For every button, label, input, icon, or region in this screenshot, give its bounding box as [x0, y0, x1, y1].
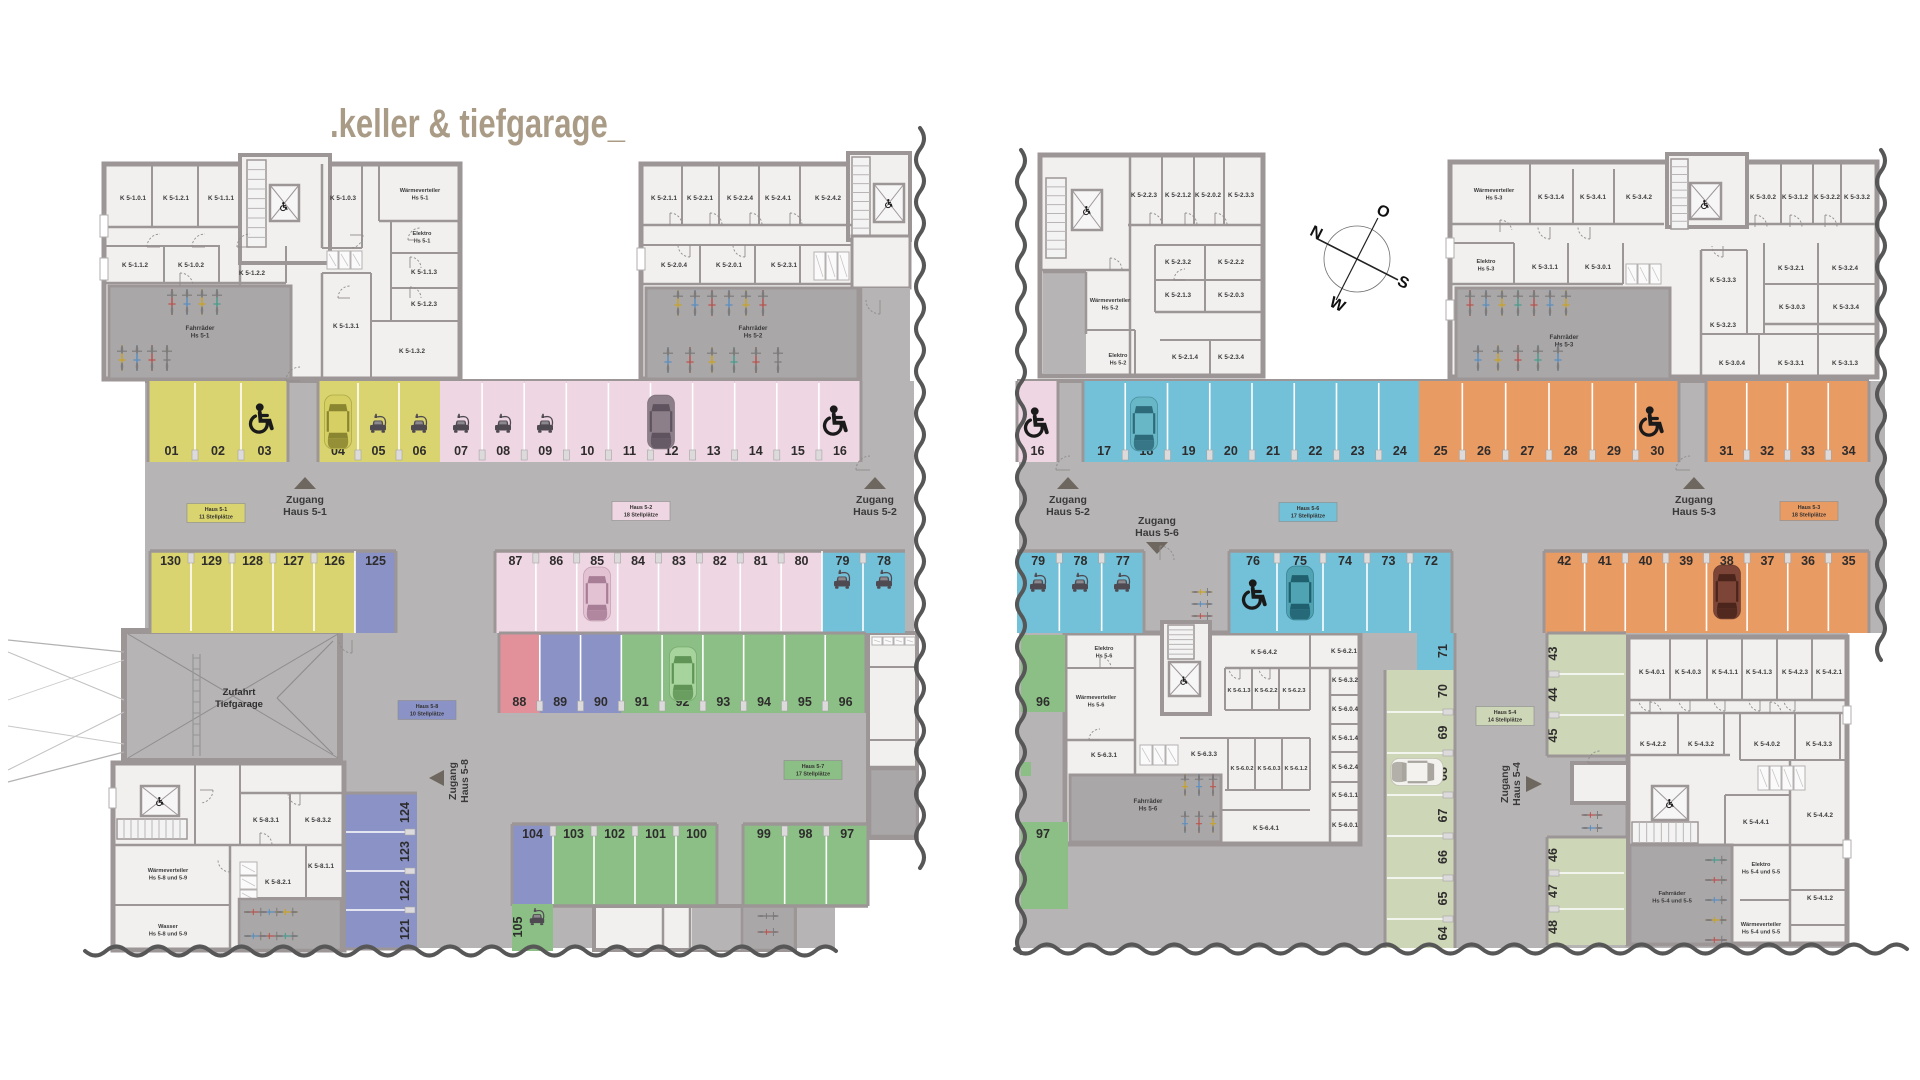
- svg-text:K 5-6.0.1: K 5-6.0.1: [1332, 822, 1358, 829]
- svg-text:Hs 5-1: Hs 5-1: [191, 333, 210, 340]
- svg-text:Wärmeverteiler: Wärmeverteiler: [1076, 695, 1117, 701]
- svg-text:19: 19: [1182, 444, 1196, 458]
- svg-text:29: 29: [1607, 444, 1621, 458]
- svg-text:22: 22: [1308, 444, 1322, 458]
- svg-text:10 Stellplätze: 10 Stellplätze: [410, 712, 444, 718]
- svg-text:Haus 5-4: Haus 5-4: [1511, 762, 1523, 806]
- svg-text:84: 84: [631, 554, 645, 568]
- svg-text:K 5-3.1.2: K 5-3.1.2: [1782, 194, 1808, 201]
- svg-text:K 5-6.4.1: K 5-6.4.1: [1253, 825, 1279, 832]
- svg-text:K 5-4.1.2: K 5-4.1.2: [1807, 895, 1833, 902]
- svg-text:K 5-1.2.1: K 5-1.2.1: [163, 195, 189, 202]
- svg-text:Hs 5-2: Hs 5-2: [1110, 361, 1127, 367]
- svg-text:121: 121: [398, 919, 412, 940]
- svg-text:Hs 5-2: Hs 5-2: [1102, 306, 1119, 312]
- svg-text:124: 124: [398, 802, 412, 823]
- svg-text:K 5-2.0.4: K 5-2.0.4: [661, 262, 687, 269]
- svg-text:17 Stellplätze: 17 Stellplätze: [1291, 514, 1325, 520]
- svg-text:Elektro: Elektro: [1095, 646, 1115, 652]
- svg-text:34: 34: [1842, 444, 1856, 458]
- svg-text:42: 42: [1557, 554, 1571, 568]
- svg-text:K 5-2.1.1: K 5-2.1.1: [651, 195, 677, 202]
- svg-text:11: 11: [623, 444, 636, 458]
- svg-text:90: 90: [594, 695, 608, 709]
- svg-text:Hs 5-3: Hs 5-3: [1486, 196, 1503, 202]
- svg-text:87: 87: [508, 554, 522, 568]
- svg-text:Hs 5-1: Hs 5-1: [414, 239, 431, 245]
- svg-text:Haus 5-7: Haus 5-7: [802, 764, 824, 770]
- svg-text:125: 125: [365, 554, 386, 568]
- svg-text:03: 03: [258, 444, 272, 458]
- svg-text:K 5-3.0.3: K 5-3.0.3: [1779, 304, 1805, 311]
- svg-text:Zugang: Zugang: [856, 494, 894, 506]
- svg-text:K 5-1.0.2: K 5-1.0.2: [178, 262, 204, 269]
- svg-text:K 5-1.2.2: K 5-1.2.2: [239, 270, 265, 277]
- svg-text:17 Stellplätze: 17 Stellplätze: [796, 772, 830, 778]
- svg-text:K 5-3.2.3: K 5-3.2.3: [1710, 322, 1736, 329]
- svg-text:32: 32: [1760, 444, 1774, 458]
- svg-text:76: 76: [1246, 554, 1260, 568]
- svg-text:89: 89: [553, 695, 567, 709]
- svg-text:23: 23: [1351, 444, 1365, 458]
- svg-text:Hs 5-6: Hs 5-6: [1096, 654, 1113, 660]
- svg-text:K 5-8.1.1: K 5-8.1.1: [308, 863, 334, 870]
- svg-text:16: 16: [833, 444, 847, 458]
- svg-text:86: 86: [549, 554, 563, 568]
- svg-text:K 5-8.2.1: K 5-8.2.1: [265, 879, 291, 886]
- svg-text:127: 127: [283, 554, 304, 568]
- svg-text:K 5-6.1.3: K 5-6.1.3: [1227, 688, 1250, 694]
- svg-text:Hs 5-6: Hs 5-6: [1139, 806, 1158, 813]
- svg-text:97: 97: [1036, 827, 1050, 841]
- svg-text:K 5-6.4.2: K 5-6.4.2: [1251, 649, 1277, 656]
- svg-text:K 5-6.0.4: K 5-6.0.4: [1332, 706, 1358, 713]
- svg-text:K 5-3.3.2: K 5-3.3.2: [1844, 194, 1870, 201]
- svg-text:K 5-6.2.1: K 5-6.2.1: [1331, 648, 1357, 655]
- svg-text:Hs 5-3: Hs 5-3: [1478, 267, 1495, 273]
- svg-text:K 5-6.2.3: K 5-6.2.3: [1282, 688, 1305, 694]
- svg-text:Wasser: Wasser: [158, 924, 179, 930]
- svg-text:02: 02: [211, 444, 225, 458]
- svg-text:65: 65: [1436, 892, 1450, 906]
- svg-text:21: 21: [1266, 444, 1280, 458]
- svg-text:K 5-3.0.4: K 5-3.0.4: [1719, 360, 1745, 367]
- svg-text:K 5-4.2.1: K 5-4.2.1: [1816, 669, 1842, 676]
- svg-text:130: 130: [160, 554, 181, 568]
- svg-text:126: 126: [324, 554, 345, 568]
- svg-text:K 5-3.1.1: K 5-3.1.1: [1532, 264, 1558, 271]
- svg-text:Wärmeverteiler: Wärmeverteiler: [148, 868, 189, 874]
- svg-text:K 5-4.4.2: K 5-4.4.2: [1807, 812, 1833, 819]
- svg-text:96: 96: [839, 695, 853, 709]
- svg-text:104: 104: [522, 827, 543, 841]
- svg-text:K 5-1.3.1: K 5-1.3.1: [333, 323, 359, 330]
- svg-text:Haus 5-6: Haus 5-6: [1135, 527, 1179, 539]
- svg-text:99: 99: [757, 827, 771, 841]
- svg-text:K 5-2.2.4: K 5-2.2.4: [727, 195, 753, 202]
- svg-text:K 5-6.3.1: K 5-6.3.1: [1091, 752, 1117, 759]
- svg-text:80: 80: [795, 554, 809, 568]
- svg-text:Haus 5-1: Haus 5-1: [283, 506, 327, 518]
- svg-text:K 5-2.0.2: K 5-2.0.2: [1195, 192, 1221, 199]
- svg-text:K 5-3.2.4: K 5-3.2.4: [1832, 265, 1858, 272]
- svg-text:26: 26: [1477, 444, 1491, 458]
- svg-text:K 5-1.1.3: K 5-1.1.3: [411, 269, 437, 276]
- svg-text:K 5-2.0.1: K 5-2.0.1: [716, 262, 742, 269]
- svg-text:K 5-6.2.2: K 5-6.2.2: [1254, 688, 1277, 694]
- svg-text:K 5-6.3.3: K 5-6.3.3: [1191, 751, 1217, 758]
- svg-text:K 5-4.3.2: K 5-4.3.2: [1688, 741, 1714, 748]
- svg-text:K 5-2.4.1: K 5-2.4.1: [765, 195, 791, 202]
- svg-text:Fahrräder: Fahrräder: [739, 325, 768, 332]
- svg-text:73: 73: [1382, 554, 1396, 568]
- svg-text:Haus 5-2: Haus 5-2: [853, 506, 897, 518]
- svg-text:14 Stellplätze: 14 Stellplätze: [1488, 718, 1522, 724]
- svg-text:K 5-4.1.3: K 5-4.1.3: [1746, 669, 1772, 676]
- svg-text:28: 28: [1564, 444, 1578, 458]
- svg-text:K 5-2.1.2: K 5-2.1.2: [1165, 192, 1191, 199]
- svg-text:Elektro: Elektro: [1752, 862, 1772, 868]
- svg-text:K 5-4.0.2: K 5-4.0.2: [1754, 741, 1780, 748]
- svg-text:Wärmeverteiler: Wärmeverteiler: [400, 188, 441, 194]
- svg-text:27: 27: [1520, 444, 1534, 458]
- svg-text:93: 93: [716, 695, 730, 709]
- svg-text:K 5-4.1.1: K 5-4.1.1: [1712, 669, 1738, 676]
- svg-text:33: 33: [1801, 444, 1815, 458]
- svg-text:K 5-8.3.2: K 5-8.3.2: [305, 817, 331, 824]
- svg-text:11 Stellplätze: 11 Stellplätze: [199, 515, 233, 521]
- svg-text:71: 71: [1436, 644, 1450, 658]
- svg-text:K 5-2.0.3: K 5-2.0.3: [1218, 292, 1244, 299]
- svg-text:K 5-1.1.2: K 5-1.1.2: [122, 262, 148, 269]
- svg-text:35: 35: [1842, 554, 1856, 568]
- svg-text:Hs 5-4 und 5-5: Hs 5-4 und 5-5: [1742, 930, 1780, 936]
- svg-text:K 5-6.3.2: K 5-6.3.2: [1332, 677, 1358, 684]
- svg-text:18 Stellplätze: 18 Stellplätze: [1792, 513, 1826, 519]
- svg-text:Fahrräder: Fahrräder: [186, 325, 215, 332]
- svg-text:100: 100: [686, 827, 707, 841]
- svg-text:K 5-6.0.3: K 5-6.0.3: [1257, 766, 1280, 772]
- svg-text:78: 78: [1074, 554, 1088, 568]
- svg-text:K 5-6.1.1: K 5-6.1.1: [1332, 792, 1358, 799]
- svg-text:K 5-2.1.3: K 5-2.1.3: [1165, 292, 1191, 299]
- svg-text:Elektro: Elektro: [413, 231, 433, 237]
- svg-text:30: 30: [1650, 444, 1664, 458]
- svg-text:95: 95: [798, 695, 812, 709]
- svg-text:128: 128: [242, 554, 263, 568]
- svg-text:Hs 5-4 und 5-5: Hs 5-4 und 5-5: [1742, 870, 1780, 876]
- svg-text:K 5-3.3.1: K 5-3.3.1: [1778, 360, 1804, 367]
- svg-text:K 5-4.3.3: K 5-4.3.3: [1806, 741, 1832, 748]
- svg-text:94: 94: [757, 695, 771, 709]
- svg-text:70: 70: [1436, 684, 1450, 698]
- svg-text:K 5-6.2.4: K 5-6.2.4: [1332, 764, 1358, 771]
- svg-text:K 5-6.0.2: K 5-6.0.2: [1230, 766, 1253, 772]
- svg-text:K 5-2.4.2: K 5-2.4.2: [815, 195, 841, 202]
- svg-text:81: 81: [754, 554, 768, 568]
- svg-text:16: 16: [1031, 444, 1045, 458]
- svg-text:69: 69: [1436, 726, 1450, 740]
- svg-text:06: 06: [413, 444, 427, 458]
- svg-text:K 5-4.4.1: K 5-4.4.1: [1743, 819, 1769, 826]
- svg-text:101: 101: [645, 827, 666, 841]
- svg-text:.keller & tiefgarage_: .keller & tiefgarage_: [330, 102, 626, 146]
- svg-text:K 5-4.0.1: K 5-4.0.1: [1639, 669, 1665, 676]
- svg-text:K 5-2.2.3: K 5-2.2.3: [1131, 192, 1157, 199]
- svg-text:83: 83: [672, 554, 686, 568]
- svg-text:01: 01: [165, 444, 179, 458]
- svg-text:K 5-3.3.4: K 5-3.3.4: [1833, 304, 1859, 311]
- svg-text:78: 78: [877, 554, 891, 568]
- svg-text:K 5-3.1.4: K 5-3.1.4: [1538, 194, 1564, 201]
- svg-text:K 5-3.0.2: K 5-3.0.2: [1750, 194, 1776, 201]
- svg-text:Haus 5-8: Haus 5-8: [416, 704, 438, 710]
- svg-text:Wärmeverteiler: Wärmeverteiler: [1090, 298, 1131, 304]
- svg-text:K 5-3.1.3: K 5-3.1.3: [1832, 360, 1858, 367]
- svg-text:K 5-3.2.2: K 5-3.2.2: [1814, 194, 1840, 201]
- svg-text:Zugang: Zugang: [1499, 765, 1511, 803]
- svg-text:10: 10: [580, 444, 594, 458]
- svg-text:105: 105: [511, 917, 525, 938]
- svg-text:37: 37: [1760, 554, 1774, 568]
- svg-text:Haus 5-3: Haus 5-3: [1798, 505, 1820, 511]
- svg-text:K 5-1.3.2: K 5-1.3.2: [399, 348, 425, 355]
- svg-text:Zugang: Zugang: [447, 762, 459, 800]
- svg-text:09: 09: [538, 444, 552, 458]
- svg-text:K 5-2.2.1: K 5-2.2.1: [687, 195, 713, 202]
- svg-text:122: 122: [398, 880, 412, 901]
- svg-text:K 5-6.1.4: K 5-6.1.4: [1332, 735, 1358, 742]
- svg-text:Haus 5-1: Haus 5-1: [205, 507, 227, 513]
- svg-text:K 5-3.0.1: K 5-3.0.1: [1585, 264, 1611, 271]
- svg-text:39: 39: [1679, 554, 1693, 568]
- svg-text:K 5-1.2.3: K 5-1.2.3: [411, 301, 437, 308]
- svg-text:91: 91: [635, 695, 649, 709]
- svg-text:13: 13: [707, 444, 721, 458]
- svg-text:Haus 5-2: Haus 5-2: [630, 505, 652, 511]
- svg-text:Hs 5-1: Hs 5-1: [412, 196, 429, 202]
- svg-text:24: 24: [1393, 444, 1407, 458]
- svg-text:129: 129: [201, 554, 222, 568]
- svg-text:K 5-4.2.2: K 5-4.2.2: [1640, 741, 1666, 748]
- svg-text:102: 102: [604, 827, 625, 841]
- svg-text:07: 07: [454, 444, 468, 458]
- svg-text:Haus 5-6: Haus 5-6: [1297, 506, 1319, 512]
- svg-text:Fahrräder: Fahrräder: [1658, 891, 1686, 897]
- svg-text:123: 123: [398, 841, 412, 862]
- svg-text:15: 15: [791, 444, 805, 458]
- svg-text:K 5-2.3.3: K 5-2.3.3: [1228, 192, 1254, 199]
- svg-text:Hs 5-6: Hs 5-6: [1088, 703, 1105, 709]
- svg-text:K 5-3.2.1: K 5-3.2.1: [1778, 265, 1804, 272]
- svg-text:97: 97: [840, 827, 854, 841]
- svg-text:72: 72: [1424, 554, 1438, 568]
- svg-text:K 5-1.0.3: K 5-1.0.3: [330, 195, 356, 202]
- svg-text:Wärmeverteiler: Wärmeverteiler: [1741, 922, 1782, 928]
- svg-text:18 Stellplätze: 18 Stellplätze: [624, 513, 658, 519]
- svg-text:66: 66: [1436, 850, 1450, 864]
- svg-text:K 5-2.2.2: K 5-2.2.2: [1218, 259, 1244, 266]
- svg-text:K 5-2.3.4: K 5-2.3.4: [1218, 354, 1244, 361]
- svg-text:31: 31: [1719, 444, 1733, 458]
- svg-text:Haus 5-2: Haus 5-2: [1046, 506, 1090, 518]
- svg-text:Hs 5-8 und 5-9: Hs 5-8 und 5-9: [149, 932, 187, 938]
- svg-text:Hs 5-4 und 5-5: Hs 5-4 und 5-5: [1652, 899, 1692, 905]
- svg-text:K 5-2.3.2: K 5-2.3.2: [1165, 259, 1191, 266]
- svg-text:Hs 5-8 und 5-9: Hs 5-8 und 5-9: [149, 876, 187, 882]
- svg-text:Fahrräder: Fahrräder: [1134, 798, 1163, 805]
- svg-text:K 5-8.3.1: K 5-8.3.1: [253, 817, 279, 824]
- svg-text:79: 79: [1031, 554, 1045, 568]
- svg-text:74: 74: [1338, 554, 1352, 568]
- svg-text:Zugang: Zugang: [1049, 494, 1087, 506]
- svg-text:40: 40: [1639, 554, 1653, 568]
- svg-text:K 5-2.1.4: K 5-2.1.4: [1172, 354, 1198, 361]
- svg-text:77: 77: [1116, 554, 1130, 568]
- svg-text:08: 08: [496, 444, 510, 458]
- svg-text:64: 64: [1436, 927, 1450, 941]
- svg-text:96: 96: [1036, 695, 1050, 709]
- svg-text:88: 88: [512, 695, 526, 709]
- svg-text:79: 79: [836, 554, 850, 568]
- svg-text:Hs 5-2: Hs 5-2: [744, 333, 763, 340]
- svg-text:Zufahrt: Zufahrt: [223, 687, 257, 698]
- svg-text:Haus 5-3: Haus 5-3: [1672, 506, 1716, 518]
- svg-text:25: 25: [1434, 444, 1448, 458]
- svg-text:98: 98: [799, 827, 813, 841]
- svg-text:K 5-1.1.1: K 5-1.1.1: [208, 195, 234, 202]
- svg-text:Fahrräder: Fahrräder: [1550, 334, 1579, 341]
- svg-text:K 5-3.3.3: K 5-3.3.3: [1710, 277, 1736, 284]
- svg-text:05: 05: [372, 444, 386, 458]
- svg-text:67: 67: [1436, 809, 1450, 823]
- svg-text:41: 41: [1598, 554, 1612, 568]
- svg-text:K 5-6.1.2: K 5-6.1.2: [1284, 766, 1307, 772]
- svg-text:Tiefgarage: Tiefgarage: [215, 699, 263, 710]
- svg-text:14: 14: [749, 444, 763, 458]
- svg-text:K 5-2.3.1: K 5-2.3.1: [771, 262, 797, 269]
- svg-text:85: 85: [590, 554, 604, 568]
- svg-text:Elektro: Elektro: [1477, 259, 1497, 265]
- svg-text:20: 20: [1224, 444, 1238, 458]
- svg-text:K 5-1.0.1: K 5-1.0.1: [120, 195, 146, 202]
- svg-text:Wärmeverteiler: Wärmeverteiler: [1474, 188, 1515, 194]
- svg-text:K 5-4.2.3: K 5-4.2.3: [1782, 669, 1808, 676]
- svg-text:82: 82: [713, 554, 727, 568]
- svg-text:Haus 5-4: Haus 5-4: [1494, 710, 1516, 716]
- svg-text:Elektro: Elektro: [1109, 353, 1129, 359]
- svg-text:K 5-4.0.3: K 5-4.0.3: [1675, 669, 1701, 676]
- svg-text:K 5-3.4.1: K 5-3.4.1: [1580, 194, 1606, 201]
- svg-text:103: 103: [563, 827, 584, 841]
- svg-text:Zugang: Zugang: [1675, 494, 1713, 506]
- svg-text:Zugang: Zugang: [286, 494, 324, 506]
- svg-text:Haus 5-8: Haus 5-8: [459, 759, 471, 803]
- svg-text:K 5-3.4.2: K 5-3.4.2: [1626, 194, 1652, 201]
- svg-text:36: 36: [1801, 554, 1815, 568]
- svg-text:17: 17: [1097, 444, 1111, 458]
- svg-text:Zugang: Zugang: [1138, 515, 1176, 527]
